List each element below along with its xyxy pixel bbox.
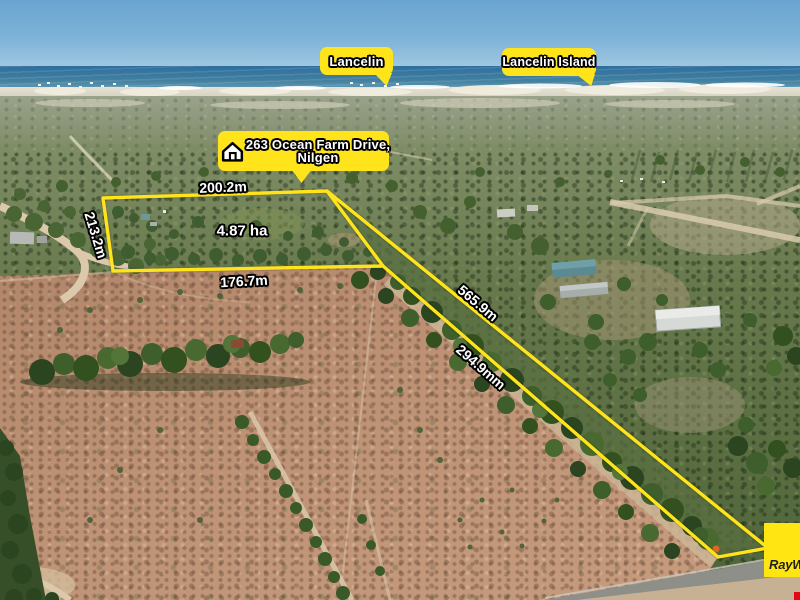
address-label: 263 Ocean Farm Drive, Nilgen xyxy=(218,131,389,171)
aerial-property-photo: { "scene": { "type": "aerial-property-ph… xyxy=(0,0,800,600)
raywhite-red-mark xyxy=(794,592,800,600)
raywhite-logo: RayWhite. xyxy=(764,523,800,577)
measurement-north: 200.2m xyxy=(199,178,247,196)
address-line1: 263 Ocean Farm Drive, xyxy=(246,138,390,152)
house-icon xyxy=(219,139,246,164)
measurement-south: 176.7m xyxy=(220,272,268,290)
address-label-text: 263 Ocean Farm Drive, Nilgen xyxy=(246,138,390,165)
raywhite-wordmark: RayWhite. xyxy=(769,557,800,572)
address-line2: Nilgen xyxy=(246,151,390,165)
place-label-lancelin-island-text: Lancelin Island xyxy=(502,55,595,69)
property-boundary-overlay xyxy=(0,0,800,600)
place-label-lancelin-island: Lancelin Island xyxy=(502,48,596,76)
property-boundary-outline xyxy=(103,191,768,557)
measurement-area: 4.87 ha xyxy=(217,223,268,240)
place-label-lancelin-text: Lancelin xyxy=(329,54,383,69)
place-label-lancelin: Lancelin xyxy=(320,47,393,75)
